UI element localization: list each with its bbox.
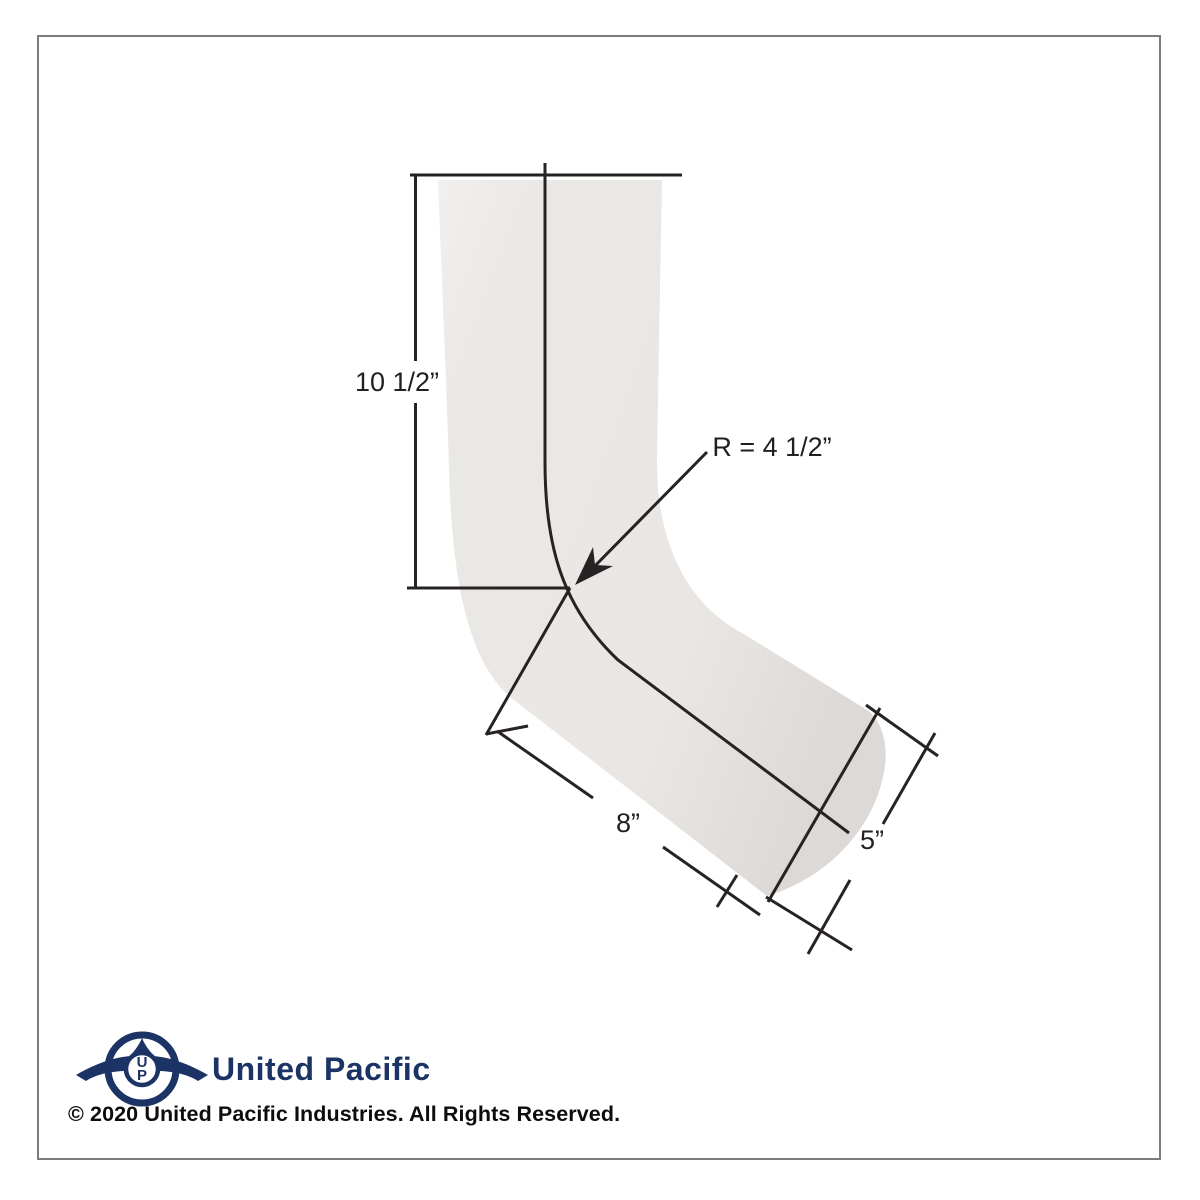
united-pacific-logo-icon: U P xyxy=(76,1035,208,1103)
page: 10 1/2” R = 4 1/2” 8” 5” xyxy=(0,0,1200,1200)
tick-start xyxy=(486,726,528,734)
dimension-line-end-upper xyxy=(883,733,935,824)
tick-end xyxy=(717,875,737,907)
extension-line-end-bottom xyxy=(766,897,852,950)
end-width-label: 5” xyxy=(860,825,884,855)
copyright-text: © 2020 United Pacific Industries. All Ri… xyxy=(68,1102,620,1127)
dimension-line-end-lower xyxy=(808,880,850,954)
lower-leg-label: 8” xyxy=(616,808,640,838)
vertical-leg-label: 10 1/2” xyxy=(355,367,439,397)
logo-monogram-p: P xyxy=(137,1067,147,1084)
brand-wordmark: United Pacific xyxy=(212,1051,431,1088)
pipe-dimension-drawing: 10 1/2” R = 4 1/2” 8” 5” xyxy=(0,0,1200,1200)
bend-radius-label: R = 4 1/2” xyxy=(712,432,831,462)
pipe-body xyxy=(438,180,886,896)
